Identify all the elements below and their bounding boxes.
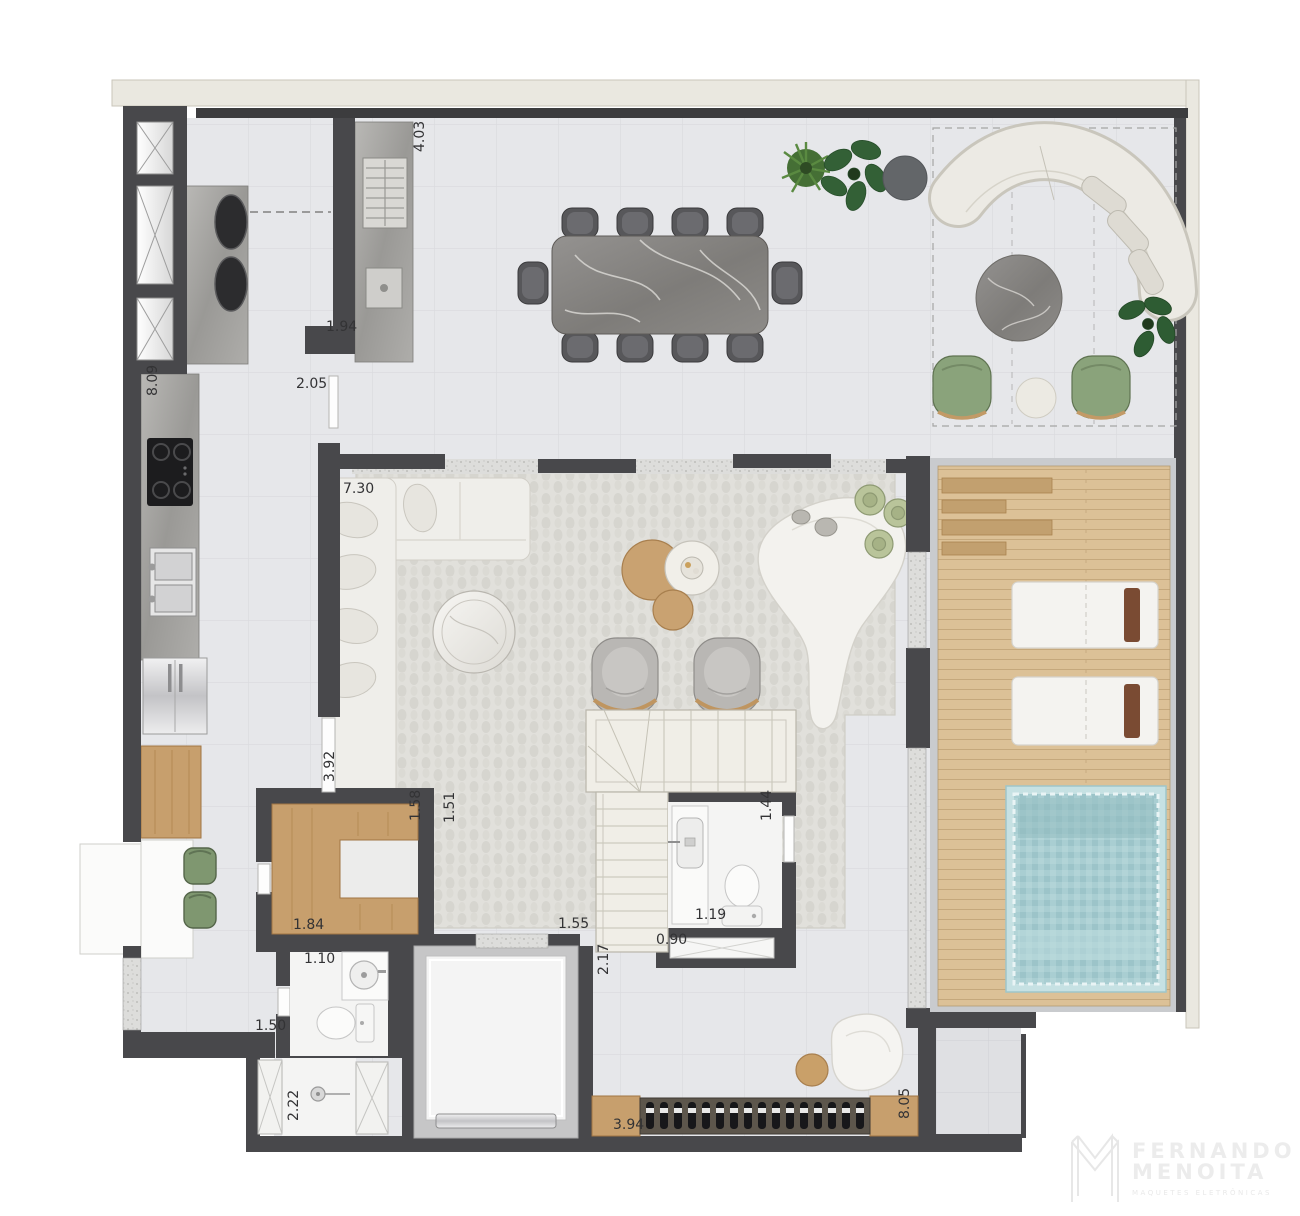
dimension-label: 1.84 [293, 917, 324, 933]
living-left-wall [318, 443, 340, 717]
dimension-label: 4.03 [412, 121, 428, 152]
deck-window-wall [906, 456, 930, 552]
bathroom-toilet [317, 1004, 374, 1042]
kitchen-counter [141, 374, 199, 660]
bathroom-vanity [342, 952, 388, 1000]
terrace-armchair-left [933, 356, 991, 418]
dimension-label: 8.05 [897, 1088, 913, 1119]
dining-table [552, 236, 768, 334]
logo-monogram-icon [1068, 1132, 1122, 1206]
dimension-label: 1.94 [326, 319, 357, 335]
dimension-label: 1.50 [255, 1018, 286, 1034]
terrace-round-table [976, 255, 1062, 341]
dimension-label: 8.09 [145, 365, 161, 396]
closet [272, 804, 418, 934]
dimension-label: 2.22 [286, 1090, 302, 1121]
louver-vent [363, 158, 407, 228]
coffee-table [433, 591, 515, 673]
dimension-label: 1.51 [442, 792, 458, 823]
service-vestibule-floor [935, 1028, 1021, 1136]
dimension-label: 1.19 [695, 907, 726, 923]
deck [930, 458, 1176, 1012]
logo-surname: MENOITA [1132, 1162, 1296, 1183]
powder-toilet [722, 865, 762, 926]
dimension-label: 7.30 [343, 481, 374, 497]
sun-lounger-1 [1012, 582, 1158, 648]
dimension-label: 1.44 [759, 790, 775, 821]
elevator-door [436, 1114, 556, 1128]
lounge-armchair [831, 1014, 902, 1090]
floorplan-page: 4.031.942.058.097.303.921.581.511.841.10… [0, 0, 1300, 1216]
elevator-walls [402, 946, 414, 1138]
side-stool [796, 1054, 828, 1086]
breakfast-counter [80, 840, 193, 958]
elevator-shafts [137, 122, 173, 360]
cooktop [147, 438, 193, 506]
dimension-label: 1.58 [408, 790, 424, 821]
floorplan-drawing: 4.031.942.058.097.303.921.581.511.841.10… [0, 0, 1300, 1216]
sun-lounger-2 [1012, 677, 1158, 745]
elevator-threshold [476, 934, 548, 948]
bathroom [290, 952, 388, 1056]
logo-name: FERNANDO [1132, 1141, 1296, 1162]
private-elevator [414, 934, 578, 1138]
refrigerator [143, 658, 207, 734]
top-facade-band [112, 80, 1199, 106]
dimension-label: 0.90 [656, 932, 687, 948]
terrace-pouf [1016, 378, 1056, 418]
kitchen [80, 374, 216, 958]
dimension-label: 3.92 [322, 751, 338, 782]
kitchen-window [123, 958, 141, 1030]
sliding-door-track [1021, 1034, 1026, 1138]
pool [1006, 786, 1166, 992]
planter-column [883, 156, 927, 200]
dimension-label: 1.55 [558, 916, 589, 932]
logo-tagline: maquetes eletrônicas [1132, 1190, 1296, 1197]
dimension-label: 2.17 [596, 944, 612, 975]
right-facade-band [1186, 80, 1199, 1028]
terrace-armchair-right [1072, 356, 1130, 418]
kitchen-cabinet-wood [141, 746, 201, 838]
dimension-label: 1.10 [304, 951, 335, 967]
kitchen-sink [149, 548, 197, 616]
dimension-label: 3.94 [613, 1117, 644, 1133]
studio-logo: FERNANDO MENOITA maquetes eletrônicas [1068, 1132, 1296, 1206]
shower-room [258, 1058, 388, 1136]
dimension-label: 2.05 [296, 376, 327, 392]
facade-glazing-track [196, 108, 1188, 118]
